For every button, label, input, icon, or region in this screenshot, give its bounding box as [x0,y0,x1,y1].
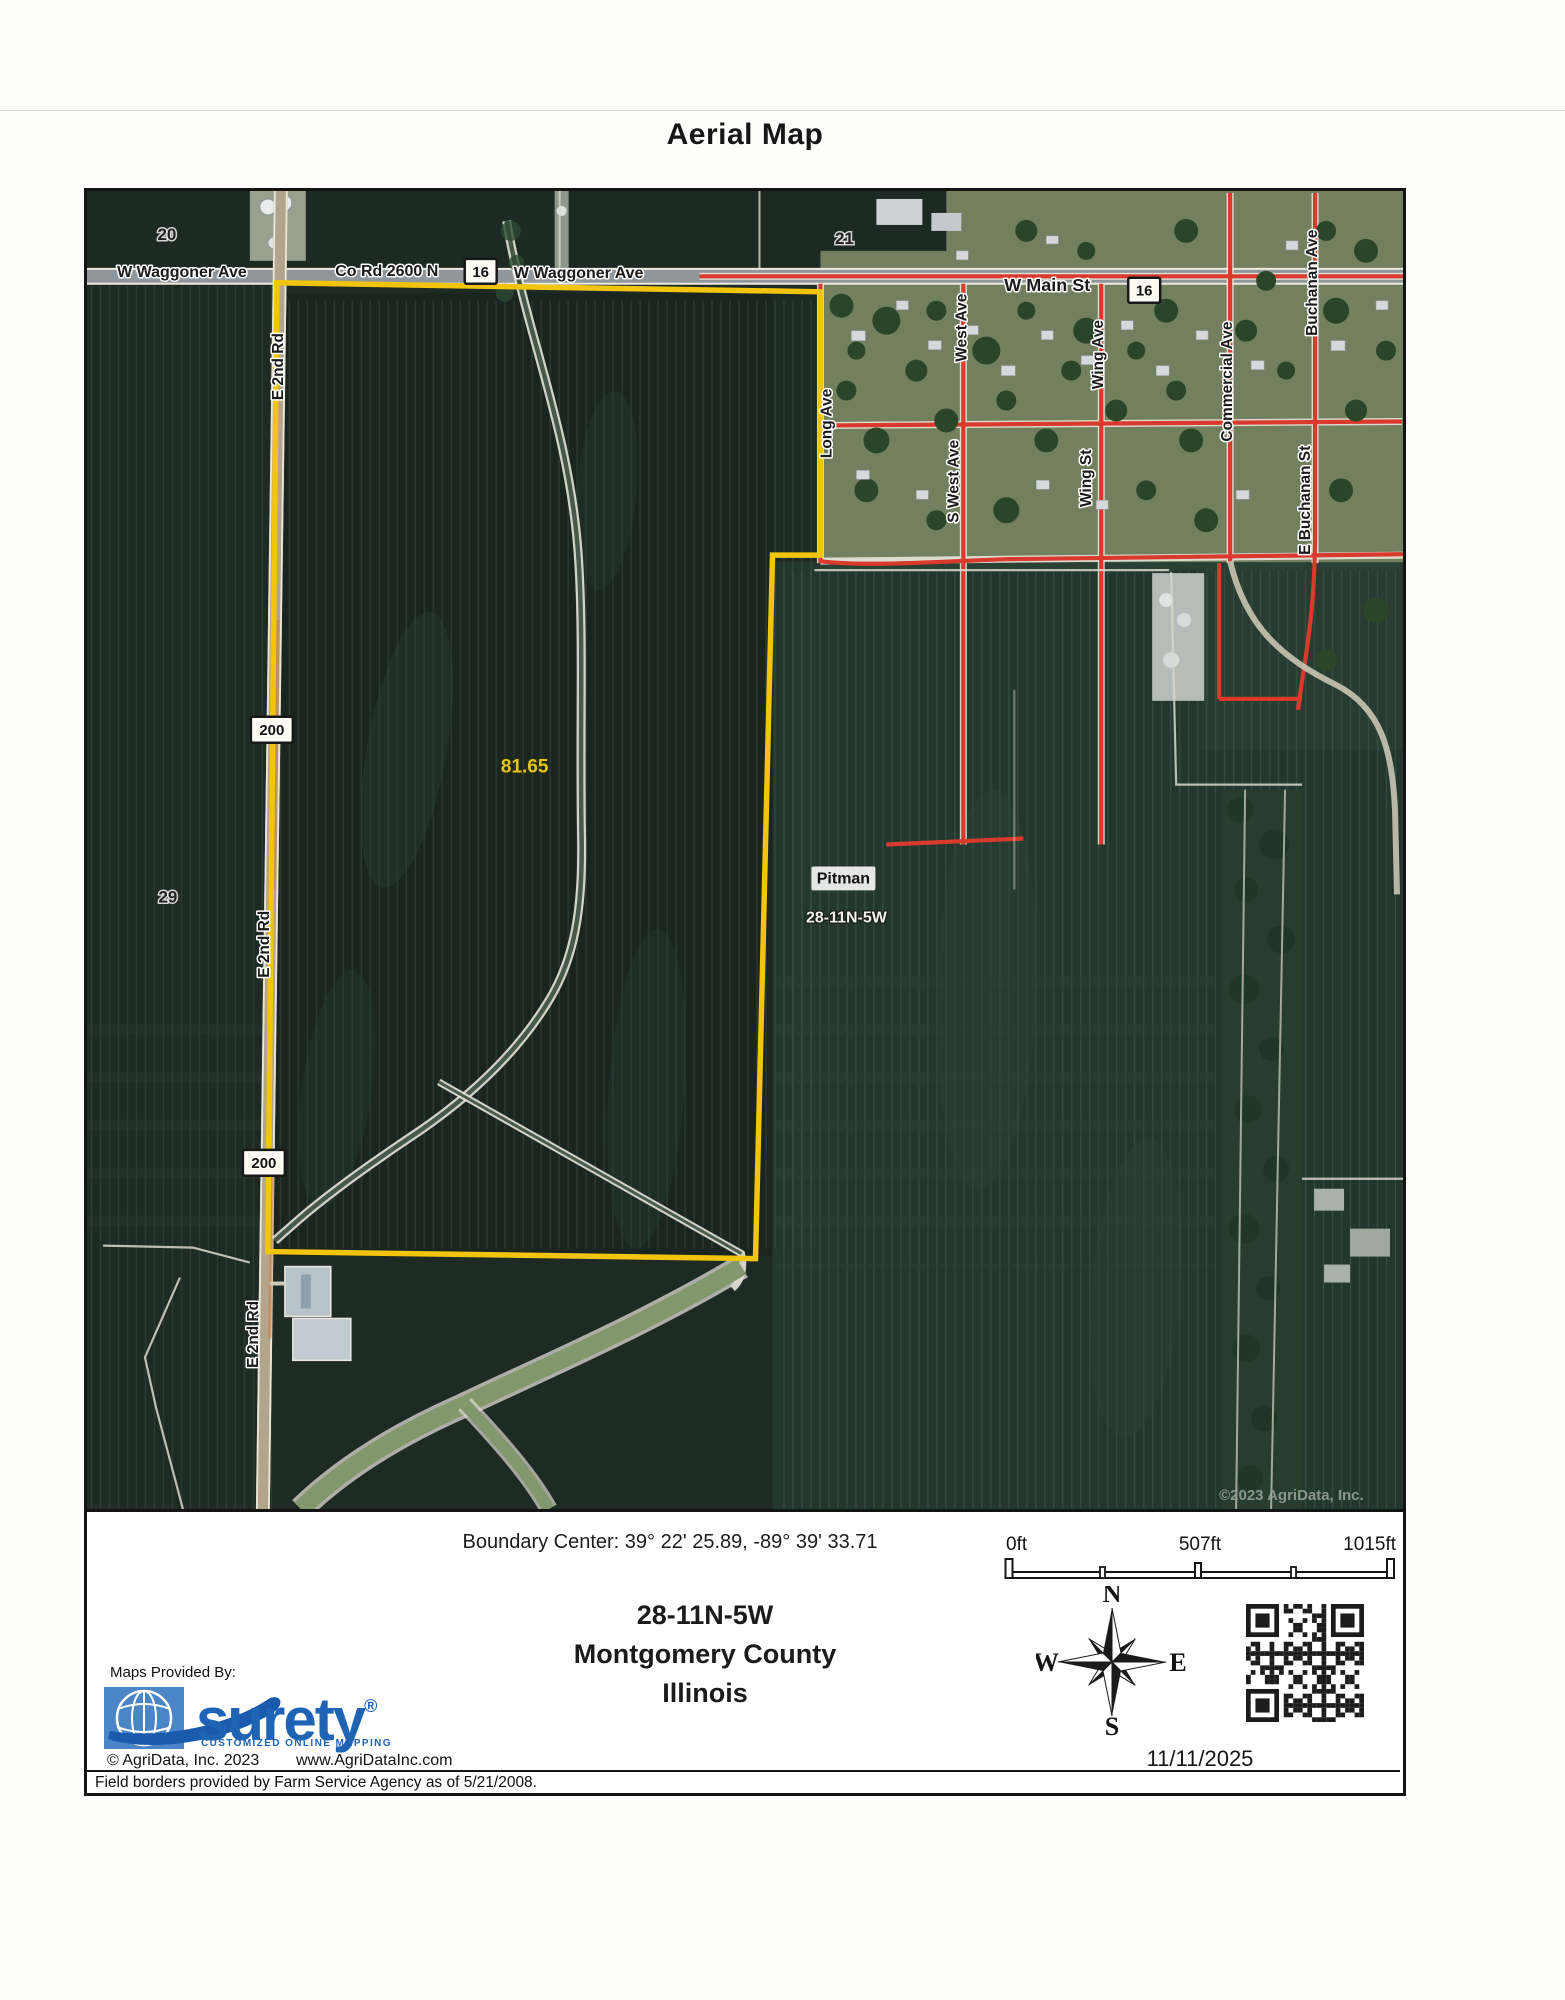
pitman-label: Pitman [817,870,870,887]
map-watermark: ©2023 AgriData, Inc. [1219,1487,1364,1504]
road-label-long-ave: Long Ave [818,388,835,458]
road-label-s-west-ave: S West Ave [945,440,962,523]
compass-cardinal-points [1058,1608,1166,1716]
scale-bar-labels: 0ft 507ft 1015ft [1004,1534,1396,1556]
compass-w: W [1036,1648,1059,1677]
road-label-e2nd-3: E 2nd Rd [245,1301,262,1368]
road-label-co-rd-2600n: Co Rd 2600 N [335,263,438,280]
compass-s: S [1105,1712,1119,1738]
surety-tagline: CUSTOMIZED ONLINE MAPPING [201,1738,392,1749]
location-title: 28-11N-5W Montgomery County Illinois [480,1596,930,1713]
route-16-shield-2-text: 16 [1136,283,1153,300]
road-label-waggoner-w: W Waggoner Ave [117,264,247,281]
compass-rose: N E S W [1036,1586,1188,1738]
scale-bar [1004,1558,1396,1582]
scale-end: 1015ft [1343,1534,1396,1556]
footer-divider [87,1770,1400,1772]
field-borders-note: Field borders provided by Farm Service A… [95,1774,537,1792]
aerial-map-page: Aerial Map [0,0,1565,2000]
compass-n: N [1103,1586,1122,1608]
county-line: Montgomery County [480,1635,930,1674]
state-line: Illinois [480,1674,930,1713]
tree-strip [1222,790,1302,1509]
road-label-commercial-ave: Commercial Ave [1219,321,1236,441]
qr-code [1245,1604,1365,1722]
route-16-shield-text: 16 [472,264,489,281]
section-21: 21 [835,229,854,248]
section-29: 29 [158,887,177,906]
registered-mark: ® [364,1696,377,1716]
grain-facility [1152,573,1204,701]
road-label-buchanan-ave: Buchanan Ave [1304,229,1321,336]
compass-e: E [1169,1648,1186,1677]
acreage-label: 81.65 [501,757,549,778]
road-label-wing-st: Wing St [1078,450,1095,507]
plss-line: 28-11N-5W [480,1596,930,1635]
road-label-main-st: W Main St [1004,275,1090,295]
road-label-west-ave: West Ave [953,293,970,362]
page-top-divider [0,110,1565,111]
road-label-e-buchanan-st: E Buchanan St [1297,446,1314,555]
road-label-wing-ave: Wing Ave [1090,320,1107,390]
boundary-center-text: Boundary Center: 39° 22' 25.89, -89° 39'… [350,1531,990,1554]
map-date: 11/11/2025 [1100,1746,1300,1772]
page-title: Aerial Map [84,118,1406,152]
scale-mid: 507ft [1004,1534,1396,1556]
agridata-website: www.AgriDataInc.com [296,1752,453,1770]
route-200-shield-text: 200 [259,722,284,739]
road-label-e2nd-2: E 2nd Rd [256,911,273,978]
road-label-waggoner-e: W Waggoner Ave [514,265,644,282]
aerial-map-svg: W Waggoner Ave Co Rd 2600 N 16 W Waggone… [87,191,1403,1509]
aerial-map-image: W Waggoner Ave Co Rd 2600 N 16 W Waggone… [87,191,1403,1512]
section-20: 20 [157,225,176,244]
agridata-copyright: © AgriData, Inc. 2023 [107,1752,259,1770]
plss-map-label: 28-11N-5W [806,909,888,926]
road-label-e2nd-1: E 2nd Rd [270,333,287,400]
route-200-shield-2-text: 200 [251,1155,276,1172]
